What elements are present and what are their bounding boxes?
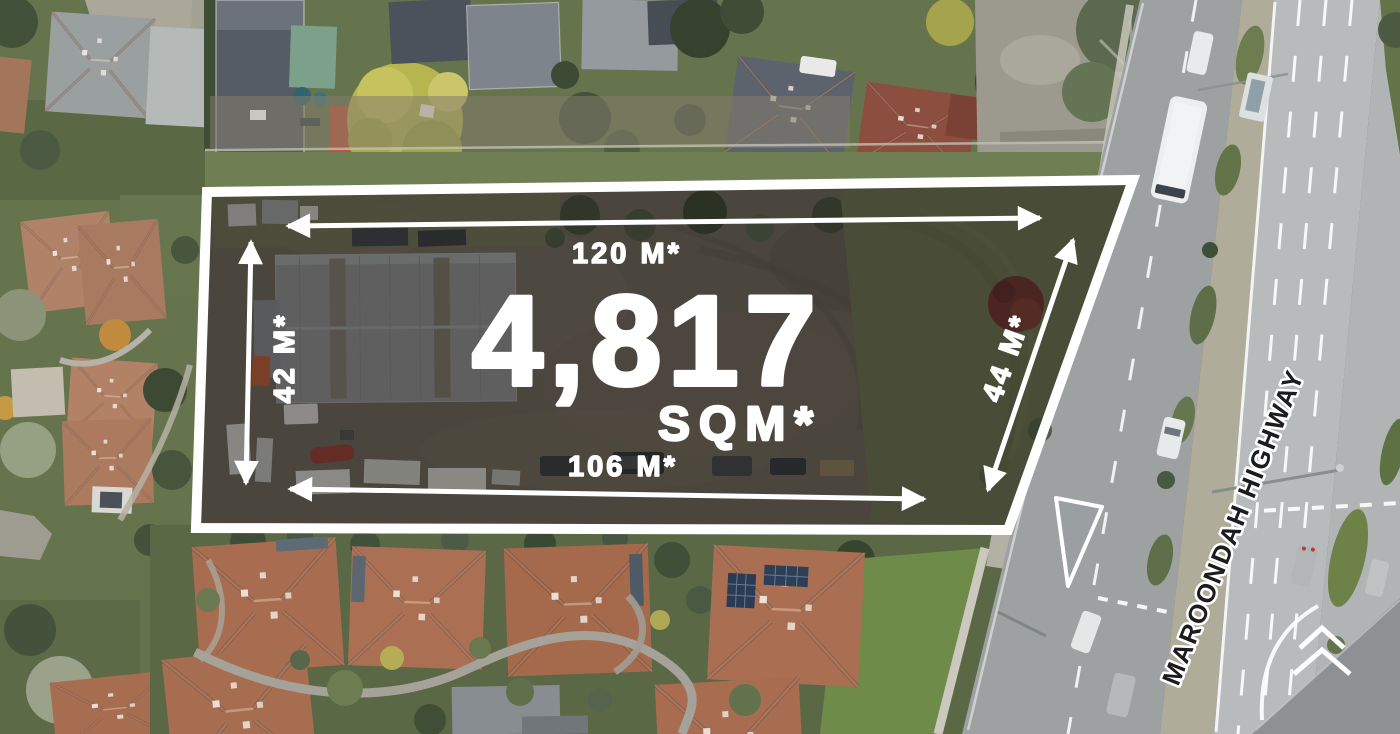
aerial-property-advert: 120 M* 42 M* 106 M* 44 M* 4,817 SQM* MAR… [0,0,1400,734]
house-roof [45,12,155,119]
pool-cover [289,25,337,89]
unit-roof [655,677,806,734]
unit-roof [348,546,486,670]
dimension-label-bottom: 106 M* [568,451,678,483]
area-unit-label: SQM* [658,398,822,451]
area-value-label: 4,817 [472,270,822,413]
carport-roof [11,367,65,418]
house-roof [77,219,166,325]
dimension-label-left: 42 M* [269,313,301,404]
dimension-label-top: 120 M* [572,238,682,270]
